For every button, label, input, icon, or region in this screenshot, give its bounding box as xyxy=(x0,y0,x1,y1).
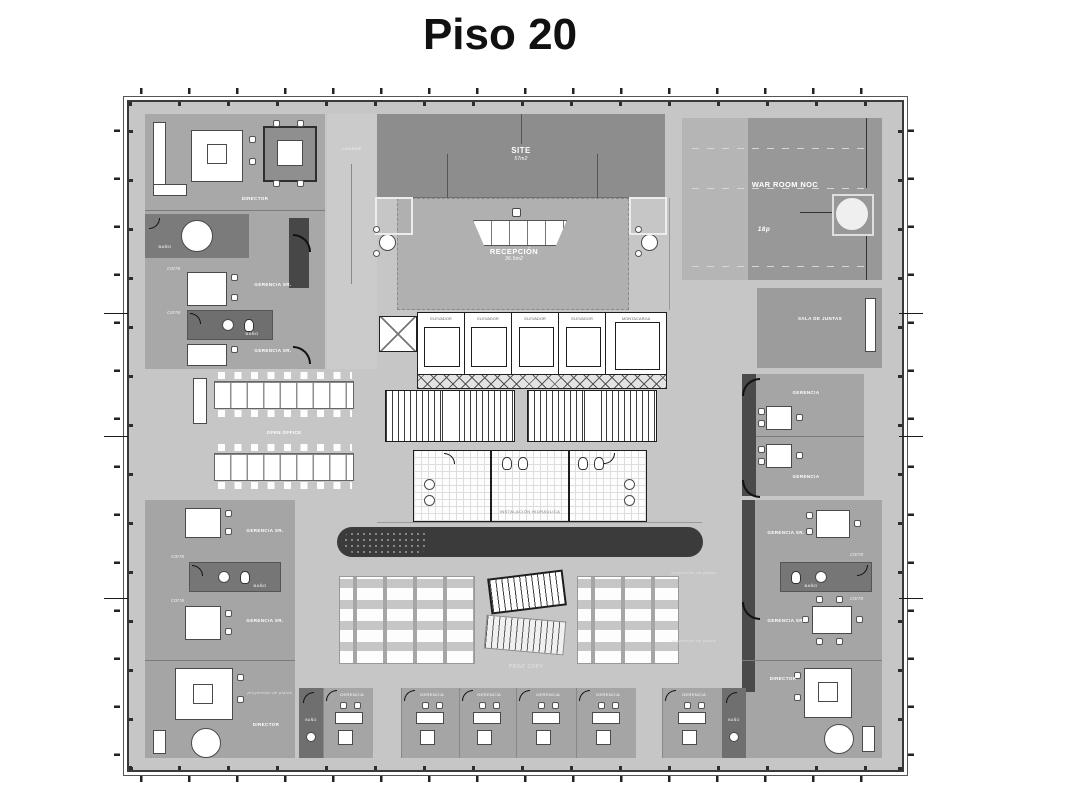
room-label-bano: BAÑO xyxy=(248,583,272,588)
zone-bottom-left-offices: GERENCIA SR. corre BAÑO corre GERENCIA S… xyxy=(145,500,295,758)
gerencia-desk xyxy=(766,406,792,430)
grid-line xyxy=(447,154,448,198)
room-divider xyxy=(145,660,295,661)
zone-gerencia-office: GERENCIA xyxy=(516,688,576,758)
credenza xyxy=(153,184,187,196)
room-label-site: SITE 57m2 xyxy=(491,146,551,162)
chair xyxy=(552,702,559,709)
room-label-bano: BAÑO xyxy=(153,244,177,249)
crosshair-line xyxy=(866,118,867,188)
side-table xyxy=(596,730,611,745)
gerencia-desk xyxy=(335,712,363,724)
chair xyxy=(836,638,843,645)
credenza xyxy=(862,726,875,752)
elevator-label: ELEVADOR xyxy=(512,316,558,321)
dimension-ticks-top xyxy=(140,88,888,94)
door-arc xyxy=(857,565,868,576)
chair xyxy=(758,420,765,427)
war-room-capacity: 18p xyxy=(744,226,784,234)
chair xyxy=(698,702,705,709)
side-table xyxy=(682,730,697,745)
room-label-lounge: LOUNGE xyxy=(335,146,369,151)
sink xyxy=(306,732,316,742)
zone-lounge: LOUNGE xyxy=(327,114,377,369)
chair xyxy=(373,226,380,233)
dashed-line xyxy=(692,148,872,149)
sink xyxy=(815,571,827,583)
room-label-gerencia: GERENCIA xyxy=(334,692,370,697)
room-label-gerencia: GERENCIA xyxy=(778,390,834,396)
room-label-bano: BAÑO xyxy=(723,718,745,722)
room-label-gerencia: GERENCIA xyxy=(530,692,566,697)
dimension-ticks-bottom xyxy=(140,776,888,782)
chair xyxy=(225,610,232,617)
open-office-bench xyxy=(214,453,354,481)
zone-gerencia-office: GERENCIA xyxy=(323,688,373,758)
chair xyxy=(225,628,232,635)
dimension-ticks-left xyxy=(114,112,120,756)
chair xyxy=(806,512,813,519)
sink xyxy=(218,571,230,583)
annotation-proyeccion: proyección de plafón xyxy=(225,690,315,695)
room-label-director: DIRECTOR xyxy=(239,722,293,728)
open-office-bench xyxy=(214,381,354,409)
round-table xyxy=(181,220,213,252)
zone-war-room: WAR ROOM NOC 18p xyxy=(682,118,882,280)
chair xyxy=(854,520,861,527)
elevator-shaft: ELEVADOR xyxy=(418,313,465,375)
sink xyxy=(624,479,635,490)
chair xyxy=(856,616,863,623)
zone-sala-juntas: SALA DE JUNTAS xyxy=(757,288,882,368)
freight-elevator-shaft: MONTACARGA xyxy=(606,313,666,375)
chair xyxy=(794,694,801,701)
chair xyxy=(354,702,361,709)
chair xyxy=(249,158,256,165)
room-label-gerencia: GERENCIA xyxy=(590,692,626,697)
room-label-gerencia-sr: GERENCIA SR. xyxy=(241,282,305,288)
elevator-car xyxy=(424,327,459,367)
desk-cluster xyxy=(577,576,679,664)
sink xyxy=(624,495,635,506)
elevator-car xyxy=(519,327,554,367)
chair xyxy=(758,458,765,465)
chair xyxy=(758,408,765,415)
whiteboard xyxy=(865,298,876,352)
accent-wall xyxy=(289,218,309,288)
gerencia-desk xyxy=(766,444,792,468)
room-label-open-office: OPEN OFFICE xyxy=(229,430,339,436)
room-label-corredor: corre xyxy=(163,554,193,560)
chair xyxy=(612,702,619,709)
chair xyxy=(635,250,642,257)
zone-gerencia-office: GERENCIA xyxy=(401,688,459,758)
round-table xyxy=(824,724,854,754)
room-label-gerencia: GERENCIA xyxy=(778,474,834,480)
grid-line xyxy=(351,164,352,284)
room-label-sala-juntas: SALA DE JUNTAS xyxy=(777,316,863,322)
banquette-bar xyxy=(337,527,703,557)
toilet xyxy=(502,457,512,470)
sink xyxy=(424,495,435,506)
storage-cabinet xyxy=(193,378,207,424)
zone-site: SITE 57m2 xyxy=(377,114,665,198)
round-table xyxy=(379,234,396,251)
gerencia-desk xyxy=(592,712,620,724)
column-circle xyxy=(836,198,868,230)
zone-bathrooms: INSTALACIÓN HIDRÁULICA xyxy=(413,450,647,522)
door-arc xyxy=(604,453,615,464)
stair-landing xyxy=(584,391,601,441)
chair xyxy=(297,180,304,187)
sink xyxy=(729,732,739,742)
elevator-label: MONTACARGA xyxy=(606,316,666,321)
dimension-line xyxy=(899,436,923,437)
room-divider xyxy=(145,210,325,211)
door-arc xyxy=(192,565,203,576)
gerencia-desk xyxy=(532,712,560,724)
chair xyxy=(273,120,280,127)
reception-desk xyxy=(473,220,567,246)
room-label-recepcion: RECEPCIÓN 36.5m2 xyxy=(464,247,564,263)
room-label-gerencia-sr: GERENCIA SR. xyxy=(237,528,293,534)
chair-row xyxy=(214,410,352,417)
zone-gerencia-office: GERENCIA xyxy=(576,688,636,758)
chair xyxy=(479,702,486,709)
wall-mullions-right xyxy=(898,102,902,770)
zone-right-gerencia: GERENCIA GERENCIA xyxy=(742,374,864,496)
zone-bano-1: BAÑO xyxy=(145,214,249,258)
gerencia-table xyxy=(185,508,221,538)
side-table xyxy=(536,730,551,745)
room-label-director: DIRECTOR xyxy=(225,196,285,202)
door-arc xyxy=(444,453,455,464)
door-arc xyxy=(726,692,737,703)
chair-row xyxy=(214,444,352,451)
utility-closet xyxy=(379,316,417,352)
crosshair-line xyxy=(800,212,834,213)
zone-bottom-right-offices: GERENCIA SR. corre BAÑO corre GERENCIA S… xyxy=(742,500,882,758)
sink xyxy=(424,479,435,490)
room-label-gerencia: GERENCIA xyxy=(414,692,450,697)
round-table xyxy=(641,234,658,251)
elevator-shaft: ELEVADOR xyxy=(465,313,512,375)
chair xyxy=(422,702,429,709)
gerencia-desk xyxy=(473,712,501,724)
round-table xyxy=(191,728,221,758)
stair-shaft xyxy=(527,390,657,442)
desk-return xyxy=(207,144,227,164)
room-label-war-room: WAR ROOM NOC xyxy=(730,180,840,189)
desk-cluster xyxy=(339,576,475,664)
room-divider xyxy=(742,660,882,661)
room-label-corredor: corre xyxy=(842,596,872,602)
accent-wall xyxy=(742,500,755,692)
chair xyxy=(231,346,238,353)
label-instalaciones: INSTALACIÓN HIDRÁULICA xyxy=(470,509,590,514)
dashed-line xyxy=(692,266,872,267)
chair xyxy=(237,696,244,703)
elevator-lobby-hatch xyxy=(417,374,667,389)
gerencia-desk xyxy=(416,712,444,724)
zone-gerencia-office: GERENCIA xyxy=(459,688,516,758)
dimension-ticks-right xyxy=(908,112,914,756)
desk-return xyxy=(818,682,838,702)
elevator-shaft: ELEVADOR xyxy=(559,313,606,375)
chair xyxy=(816,596,823,603)
toilet xyxy=(594,457,604,470)
room-label-gerencia: GERENCIA xyxy=(676,692,712,697)
elevator-label: ELEVADOR xyxy=(559,316,605,321)
gerencia-table xyxy=(187,344,227,366)
dimension-line xyxy=(899,598,923,599)
toilet xyxy=(518,457,528,470)
room-label-print-copy: PRINT COPY xyxy=(481,664,571,670)
gerencia-table xyxy=(187,272,227,306)
elevator-bank: ELEVADOR ELEVADOR ELEVADOR ELEVADOR MONT… xyxy=(417,312,667,376)
room-label-gerencia-sr: GERENCIA SR. xyxy=(758,530,814,536)
dimension-line xyxy=(104,436,128,437)
floor-plan: DIRECTOR BAÑO corre GERENCIA SR. BAÑO co… xyxy=(127,100,904,772)
chair xyxy=(493,702,500,709)
chair xyxy=(297,120,304,127)
elevator-shaft: ELEVADOR xyxy=(512,313,559,375)
chair xyxy=(373,250,380,257)
chair xyxy=(816,638,823,645)
chair xyxy=(231,294,238,301)
dimension-line xyxy=(104,313,128,314)
zone-bano-bottom-right: BAÑO xyxy=(722,688,746,758)
room-label-gerencia-sr: GERENCIA SR. xyxy=(237,618,293,624)
chair xyxy=(684,702,691,709)
elevator-label: ELEVADOR xyxy=(418,316,464,321)
elevator-car xyxy=(566,327,601,367)
side-table xyxy=(338,730,353,745)
chair xyxy=(538,702,545,709)
zone-bano-2: BAÑO xyxy=(187,310,273,340)
page-title: Piso 20 xyxy=(0,10,1000,60)
chair xyxy=(340,702,347,709)
banquette-texture xyxy=(343,531,429,553)
desk-return xyxy=(193,684,213,704)
meeting-table xyxy=(277,140,303,166)
door-arc xyxy=(665,690,676,701)
room-label-director: DIRECTOR xyxy=(756,676,810,682)
zone-gerencia-office: GERENCIA xyxy=(662,688,722,758)
chair-row xyxy=(214,372,352,379)
grid-line xyxy=(521,114,522,144)
door-arc xyxy=(519,690,530,701)
zone-bano-bottom-left: BAÑO xyxy=(299,688,323,758)
elevator-car xyxy=(615,322,660,370)
chair xyxy=(249,136,256,143)
annotation-proyeccion: proyección de plafón xyxy=(649,638,739,643)
crosshair-line xyxy=(866,236,867,280)
chair xyxy=(598,702,605,709)
zone-interconnect-stair xyxy=(481,568,569,664)
wall-mullions-top xyxy=(129,102,902,106)
meeting-table-6 xyxy=(812,606,852,634)
dimension-line xyxy=(899,313,923,314)
stair-flight-upper xyxy=(487,570,567,615)
chair xyxy=(225,510,232,517)
zone-bano-4: BAÑO xyxy=(780,562,872,592)
gerencia-desk xyxy=(678,712,706,724)
side-table xyxy=(420,730,435,745)
plant xyxy=(512,208,521,217)
stair-flight-lower xyxy=(484,615,567,656)
chair xyxy=(225,528,232,535)
chair xyxy=(796,452,803,459)
room-label-corredor: corre xyxy=(842,552,872,558)
door-arc xyxy=(190,313,201,324)
credenza xyxy=(153,730,166,754)
gerencia-table xyxy=(816,510,850,538)
door-arc xyxy=(579,690,590,701)
chair xyxy=(273,180,280,187)
door-arc xyxy=(149,218,160,229)
elevator-car xyxy=(471,327,506,367)
room-label-gerencia: GERENCIA xyxy=(471,692,507,697)
grid-line xyxy=(669,198,670,310)
chair xyxy=(758,446,765,453)
wall-mullions-left xyxy=(129,102,133,770)
gerencia-table xyxy=(185,606,221,640)
annotation-proyeccion: proyección de plafón xyxy=(649,570,739,575)
grid-line xyxy=(597,154,598,198)
chair xyxy=(237,674,244,681)
room-label-bano: BAÑO xyxy=(240,331,264,336)
side-table xyxy=(477,730,492,745)
chair xyxy=(796,414,803,421)
chair xyxy=(635,226,642,233)
wall-mullions-bottom xyxy=(129,766,902,770)
room-divider xyxy=(756,436,864,437)
room-label-gerencia-sr: GERENCIA SR. xyxy=(758,618,814,624)
stair-shaft xyxy=(385,390,515,442)
elevator-label: ELEVADOR xyxy=(465,316,511,321)
column xyxy=(375,197,413,235)
room-label-corredor: corre xyxy=(163,598,193,604)
chair xyxy=(231,274,238,281)
room-label-corredor: corre xyxy=(159,310,189,316)
stair-landing xyxy=(442,391,459,441)
toilet xyxy=(578,457,588,470)
sink xyxy=(222,319,234,331)
zone-bano-3: BAÑO xyxy=(189,562,281,592)
chair xyxy=(436,702,443,709)
room-label-bano: BAÑO xyxy=(799,583,823,588)
dimension-line xyxy=(104,598,128,599)
chair-row xyxy=(214,482,352,489)
room-label-bano: BAÑO xyxy=(300,718,322,722)
grid-line xyxy=(377,522,702,523)
room-label-corredor: corre xyxy=(159,266,189,272)
